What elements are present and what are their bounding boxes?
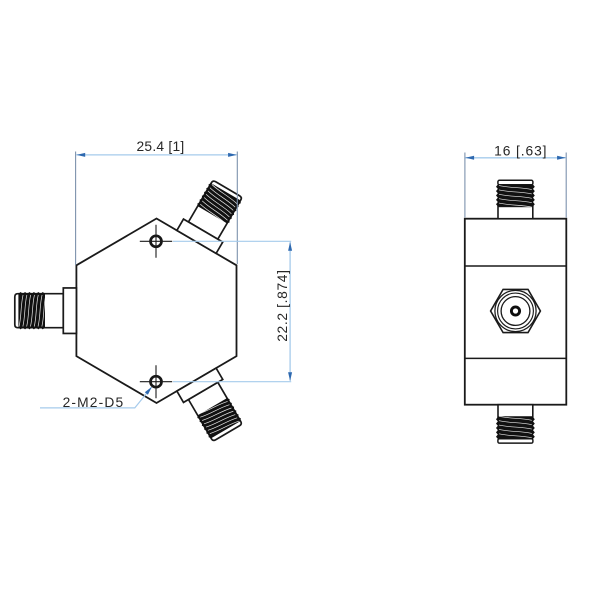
svg-text:16 [.63]: 16 [.63] [494,143,547,158]
svg-text:22.2 [.874]: 22.2 [.874] [275,269,290,341]
svg-text:2-M2-D5: 2-M2-D5 [63,395,125,410]
svg-text:25.4 [1]: 25.4 [1] [136,139,184,154]
